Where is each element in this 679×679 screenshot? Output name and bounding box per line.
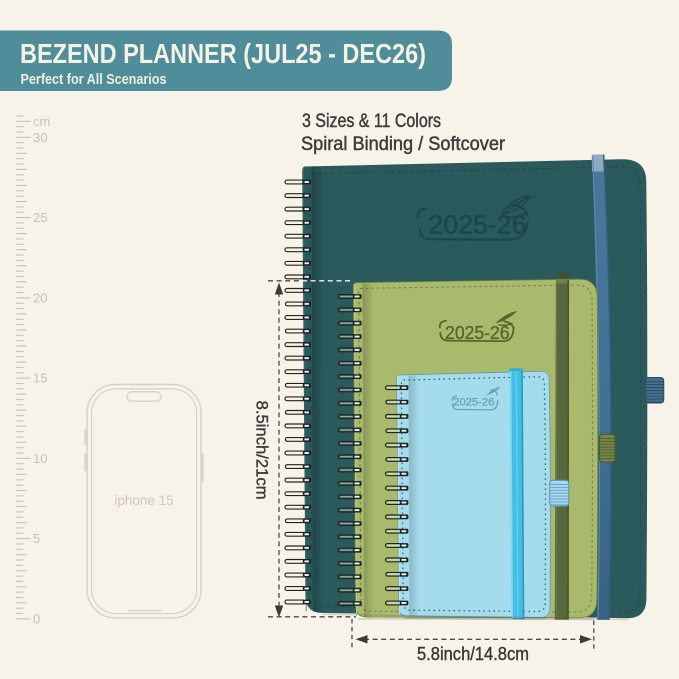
svg-text:5.8inch/14.8cm: 5.8inch/14.8cm [417, 644, 529, 664]
svg-text:BEZEND PLANNER (JUL25 - DEC26): BEZEND PLANNER (JUL25 - DEC26) [20, 38, 426, 69]
svg-text:iphone 15: iphone 15 [114, 493, 173, 508]
svg-text:15: 15 [33, 371, 47, 386]
svg-text:Perfect for All Scenarios: Perfect for All Scenarios [21, 72, 167, 88]
svg-text:8.5inch/21cm: 8.5inch/21cm [253, 401, 272, 500]
svg-text:2025-26: 2025-26 [445, 322, 510, 343]
svg-text:cm: cm [33, 114, 50, 129]
svg-text:30: 30 [33, 130, 47, 145]
svg-text:25: 25 [33, 210, 47, 225]
svg-text:5: 5 [33, 531, 40, 546]
svg-text:2025-26: 2025-26 [453, 396, 494, 408]
svg-text:2025-26: 2025-26 [429, 212, 527, 240]
svg-text:Spiral Binding / Softcover: Spiral Binding / Softcover [301, 134, 506, 155]
svg-text:10: 10 [33, 451, 47, 466]
svg-text:3 Sizes & 11 Colors: 3 Sizes & 11 Colors [302, 111, 441, 132]
svg-text:20: 20 [33, 290, 47, 305]
svg-text:0: 0 [33, 611, 40, 626]
